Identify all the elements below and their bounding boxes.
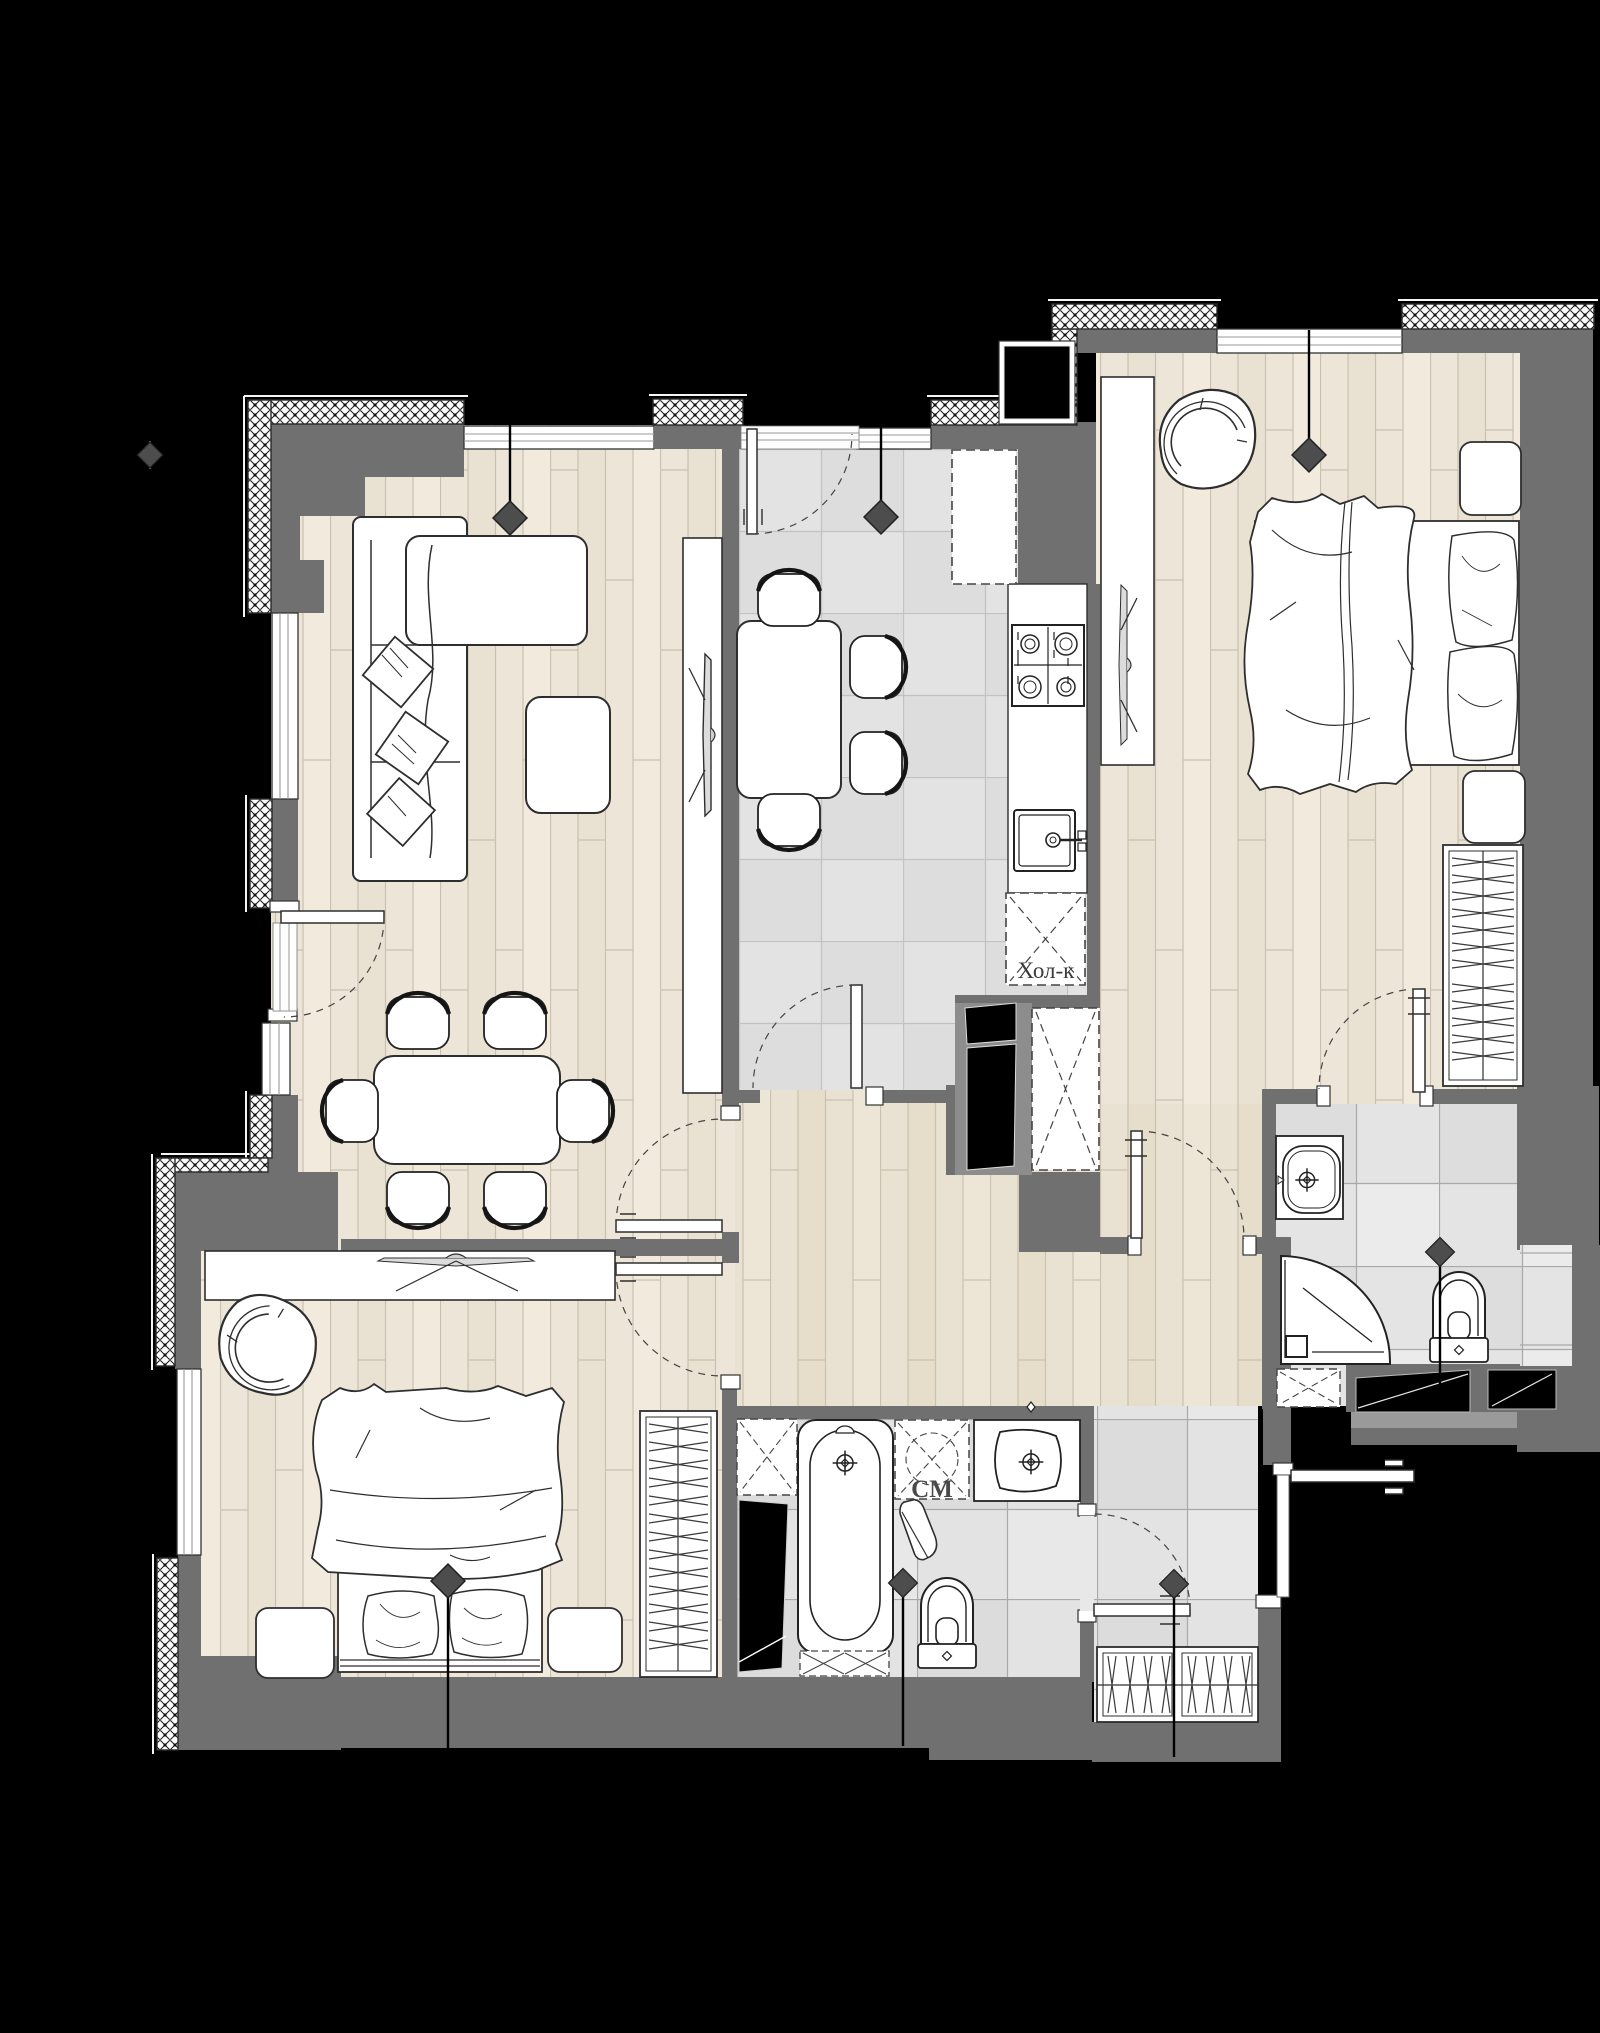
- svg-text:Хол-к: Хол-к: [1018, 958, 1075, 983]
- svg-text:СМ: СМ: [911, 1476, 953, 1503]
